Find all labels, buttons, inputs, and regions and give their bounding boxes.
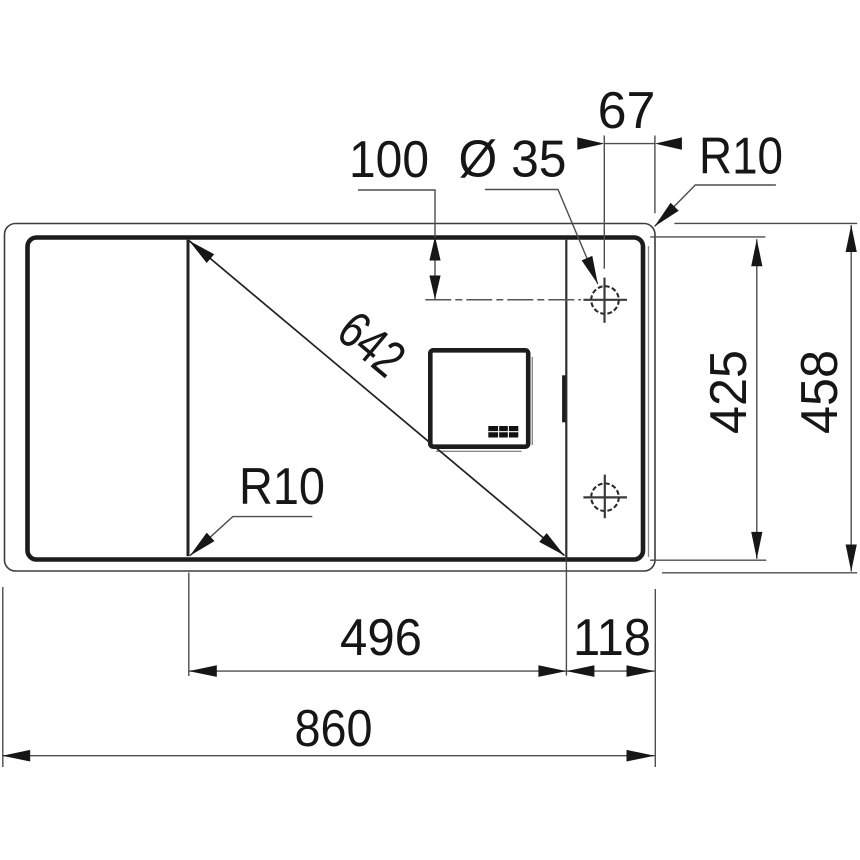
- svg-text:860: 860: [295, 700, 373, 758]
- svg-text:R10: R10: [239, 458, 325, 516]
- svg-text:458: 458: [791, 350, 849, 434]
- svg-text:Ø 35: Ø 35: [459, 131, 567, 189]
- svg-text:118: 118: [573, 609, 651, 667]
- svg-text:R10: R10: [699, 128, 783, 186]
- svg-text:496: 496: [340, 609, 422, 667]
- svg-text:67: 67: [598, 82, 656, 140]
- svg-text:100: 100: [349, 131, 429, 189]
- svg-text:425: 425: [700, 350, 758, 434]
